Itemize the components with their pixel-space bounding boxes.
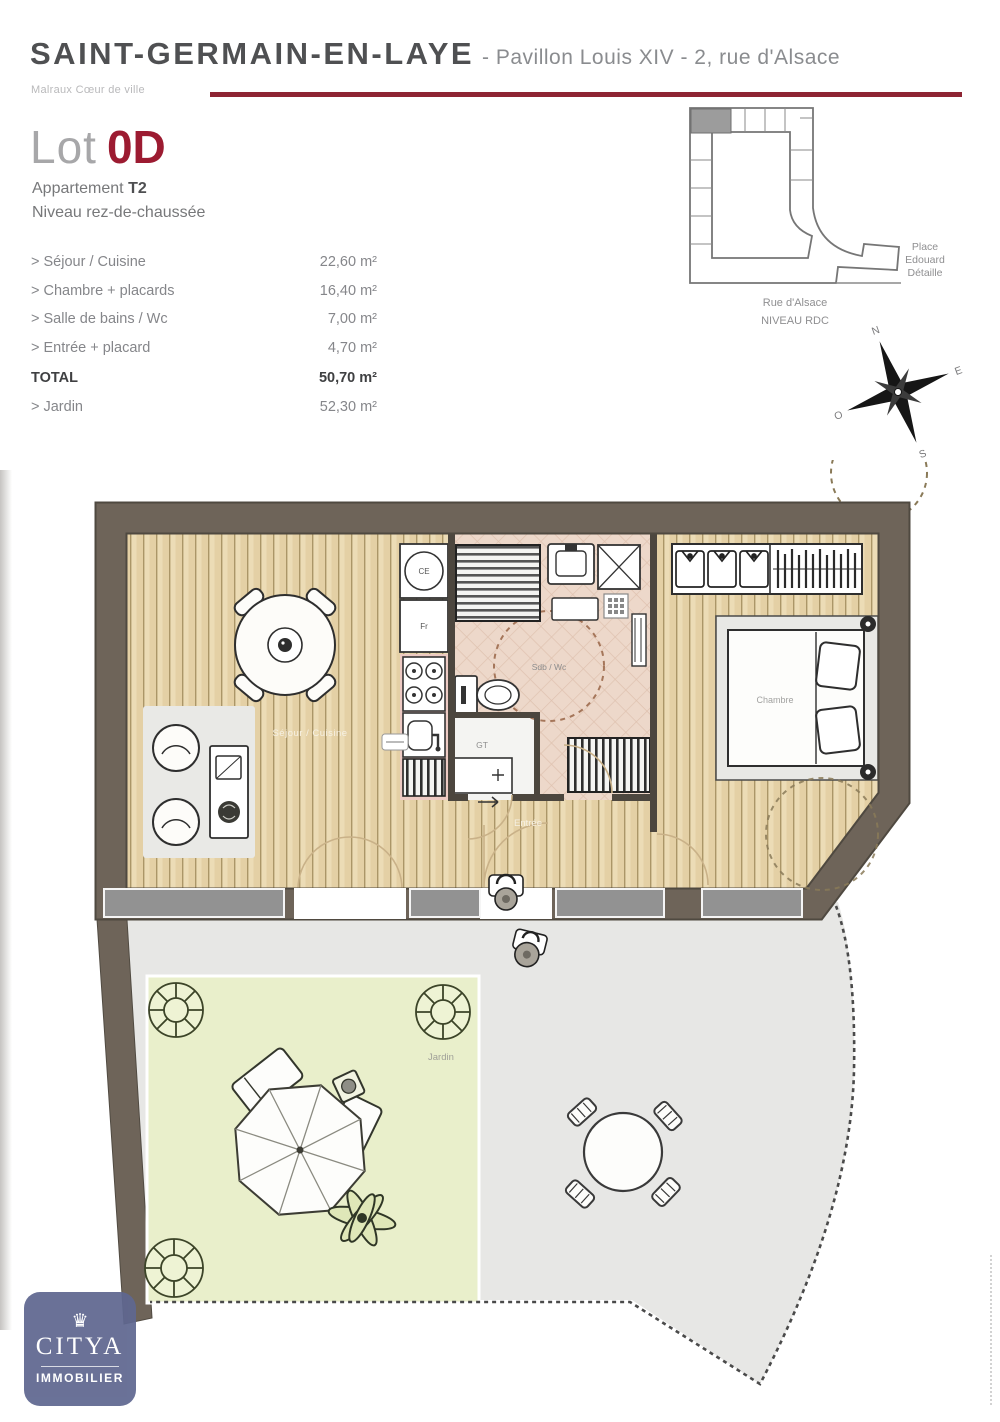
table-row: > Salle de bains / Wc7,00 m² bbox=[31, 305, 377, 334]
washing-machine-icon bbox=[598, 545, 640, 589]
page-header: SAINT-GERMAIN-EN-LAYE- Pavillon Louis XI… bbox=[30, 36, 980, 72]
radiator-icon bbox=[568, 738, 650, 792]
sdb-label: Sdb / Wc bbox=[532, 662, 567, 672]
fr-label: Fr bbox=[420, 622, 428, 631]
window-bay-icon bbox=[410, 889, 480, 917]
compass-e: E bbox=[953, 364, 964, 378]
kitchen-block: CE Fr bbox=[400, 544, 448, 796]
hanging-shirt-icon bbox=[676, 551, 768, 587]
compass-o: O bbox=[833, 409, 845, 423]
floor-drain-icon bbox=[604, 594, 628, 618]
highlighted-lot-unit bbox=[691, 109, 731, 133]
lot-label: Lot bbox=[30, 121, 97, 173]
program-label: Malraux Cœur de ville bbox=[31, 84, 145, 96]
city-title: SAINT-GERMAIN-EN-LAYE bbox=[30, 36, 474, 71]
table-row: > Entrée + placard4,70 m² bbox=[31, 334, 377, 363]
compass-n: N bbox=[870, 324, 881, 338]
citya-crown-icon: ♛ bbox=[71, 1313, 88, 1331]
site-minimap: Place Edouard Détaille Rue d'Alsace NIVE… bbox=[655, 100, 985, 480]
citya-brand: CITYA bbox=[36, 1333, 125, 1361]
street-label: Rue d'Alsace bbox=[763, 297, 827, 309]
logo-divider bbox=[41, 1366, 119, 1367]
lot-number: 0D bbox=[107, 121, 166, 173]
entry-cupboard-icon bbox=[452, 758, 512, 793]
washbasin-icon bbox=[548, 544, 594, 584]
sejour-label: Séjour / Cuisine bbox=[272, 728, 347, 739]
window-bay-icon bbox=[702, 889, 802, 917]
surface-table: > Séjour / Cuisine22,60 m² > Chambre + p… bbox=[31, 248, 377, 422]
window-bay-icon bbox=[556, 889, 664, 917]
residence-subtitle: - Pavillon Louis XIV - 2, rue d'Alsace bbox=[482, 46, 840, 69]
oven-icon bbox=[403, 759, 445, 796]
citya-tagline: IMMOBILIER bbox=[36, 1371, 124, 1385]
accent-rule bbox=[210, 92, 962, 97]
floor-plan-svg: Jardin bbox=[0, 460, 1000, 1422]
wall-radiator-icon bbox=[632, 614, 646, 666]
jardin-label: Jardin bbox=[428, 1052, 454, 1063]
window-bay-icon bbox=[104, 889, 284, 917]
building-footprint bbox=[690, 108, 899, 283]
level-label: Niveau rez-de-chaussée bbox=[32, 204, 205, 222]
toilet-icon bbox=[455, 676, 519, 714]
entree-label: Entrée bbox=[514, 818, 542, 829]
place-label-line1: Place bbox=[912, 241, 938, 253]
level-map-label: NIVEAU RDC bbox=[761, 315, 829, 327]
chambre-label: Chambre bbox=[756, 695, 793, 705]
fine-print-vertical bbox=[984, 1255, 992, 1405]
bed-icon bbox=[716, 616, 878, 780]
place-label-line2: Edouard bbox=[905, 254, 945, 266]
dining-table-icon bbox=[232, 586, 338, 703]
ce-label: CE bbox=[418, 567, 429, 576]
place-label-line3: Détaille bbox=[907, 267, 942, 279]
lot-title: Lot0D bbox=[30, 120, 166, 174]
table-row-jardin: > Jardin52,30 m² bbox=[31, 393, 377, 422]
compass-rose-icon: N E S O bbox=[810, 302, 985, 480]
page-edge-shadow bbox=[0, 470, 12, 1330]
table-row-total: TOTAL50,70 m² bbox=[31, 362, 377, 393]
table-row: > Séjour / Cuisine22,60 m² bbox=[31, 248, 377, 277]
table-row: > Chambre + placards16,40 m² bbox=[31, 277, 377, 306]
plant-pot-icon bbox=[218, 801, 240, 823]
bathtub-icon bbox=[456, 545, 540, 621]
sitting-area bbox=[143, 706, 255, 858]
apartment-type: Appartement T2 bbox=[32, 180, 147, 198]
gt-label: GT bbox=[476, 740, 488, 750]
shelf-icon bbox=[552, 598, 598, 620]
citya-logo: ♛ CITYA IMMOBILIER bbox=[24, 1292, 136, 1406]
wardrobe-icon bbox=[672, 544, 862, 594]
